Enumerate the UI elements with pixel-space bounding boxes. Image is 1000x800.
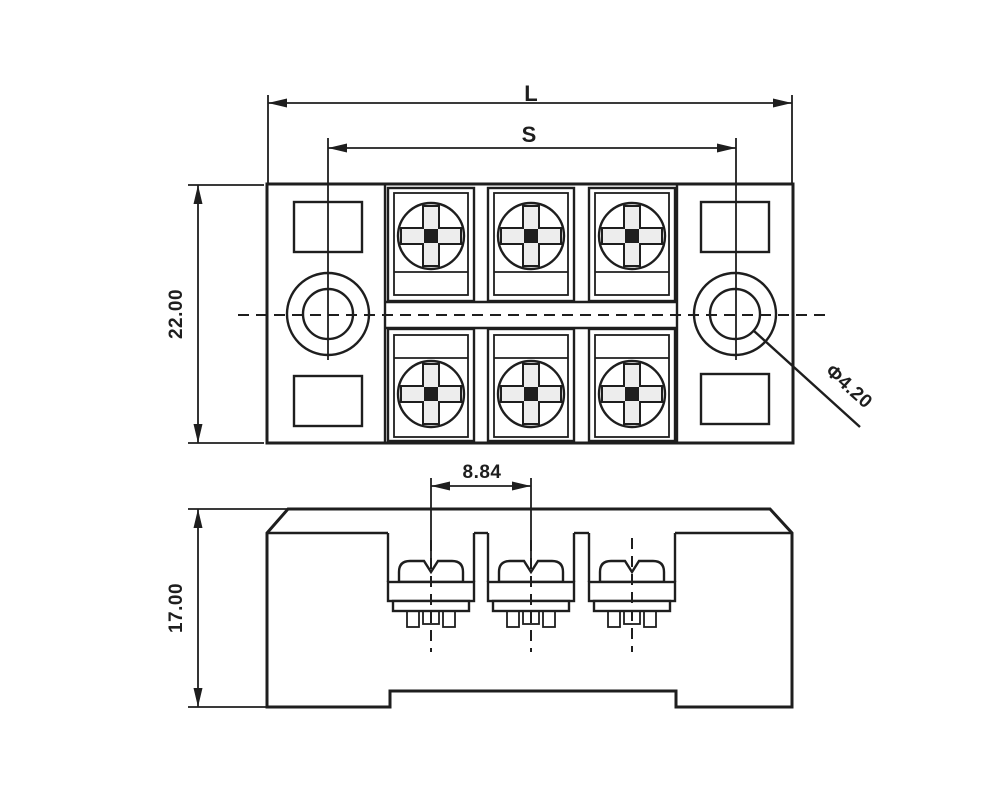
dim-label-22: 22.00 <box>166 289 187 339</box>
top-view <box>238 184 828 443</box>
dim-label-hole-diameter: Φ4.20 <box>821 361 876 413</box>
terminal-block-drawing: L S 22.00 Φ4.20 <box>0 0 1000 800</box>
drawing-sheet: L S 22.00 Φ4.20 <box>0 0 1000 800</box>
dim-label-17: 17.00 <box>166 583 187 633</box>
dimension-22: 22.00 <box>166 185 264 443</box>
dimension-17: 17.00 <box>166 509 288 707</box>
dim-label-884: 8.84 <box>463 462 502 483</box>
hole-diameter-callout: Φ4.20 <box>754 331 876 427</box>
dimension-884: 8.84 <box>431 462 531 566</box>
dim-label-S: S <box>522 122 537 147</box>
front-view <box>267 509 792 707</box>
right-end-block <box>694 202 776 424</box>
dim-label-L: L <box>524 81 537 106</box>
